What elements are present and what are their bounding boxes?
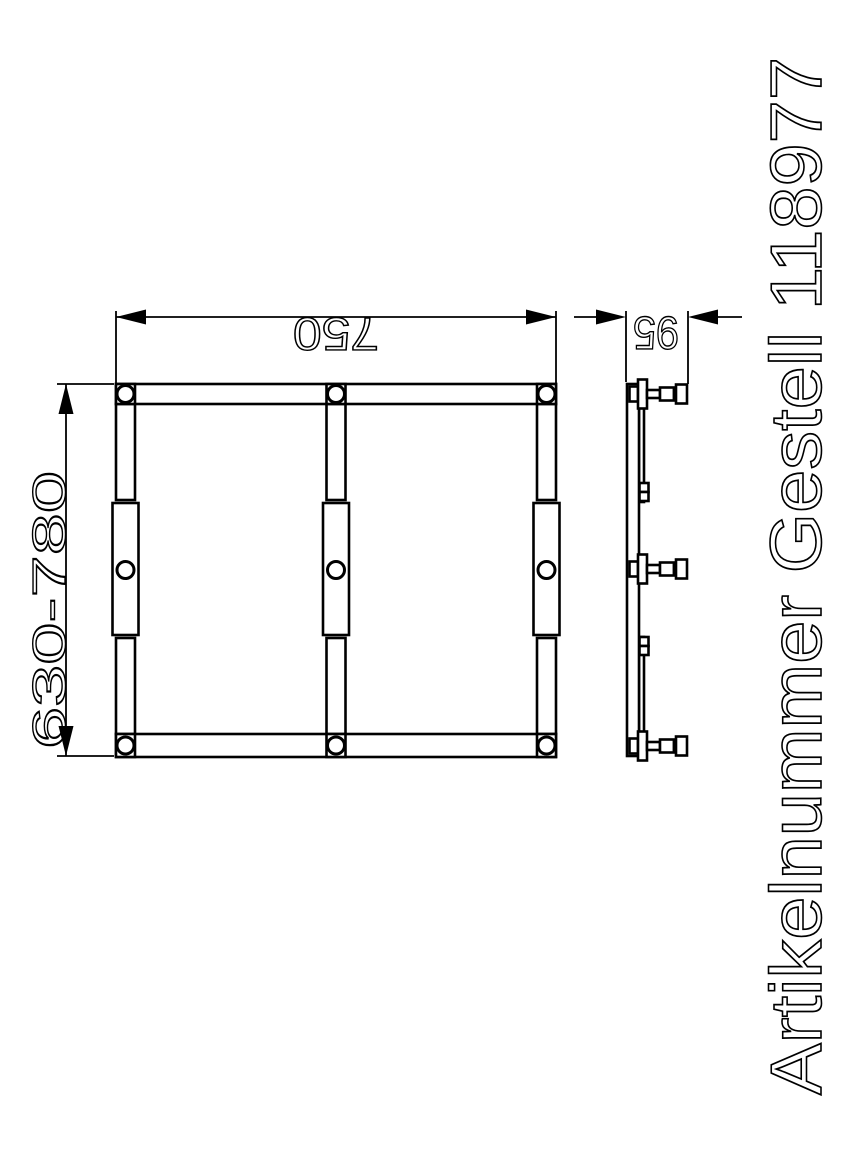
knob-shaft bbox=[647, 390, 660, 398]
clip-segment bbox=[640, 492, 649, 501]
arrowhead bbox=[59, 384, 74, 414]
clamp-knob-bottom bbox=[630, 732, 688, 761]
arrowhead bbox=[688, 310, 718, 325]
clamp-knob-middle bbox=[630, 555, 688, 584]
rail-upper-tube bbox=[327, 404, 346, 500]
mounting-hole bbox=[538, 562, 555, 579]
dimension-depth-label: 95 bbox=[633, 307, 679, 359]
rail-left bbox=[113, 384, 139, 757]
knob-collar bbox=[660, 740, 674, 753]
side-view bbox=[627, 380, 687, 761]
mounting-hole bbox=[538, 386, 555, 403]
rail-lower-tube bbox=[116, 638, 135, 734]
dimension-depth: 95 bbox=[574, 307, 742, 384]
mounting-hole bbox=[117, 562, 134, 579]
knob-collar bbox=[660, 388, 674, 401]
rail-upper-tube bbox=[537, 404, 556, 500]
rail-middle bbox=[323, 384, 349, 757]
arrowhead bbox=[526, 310, 556, 325]
dimension-height: 630-780 bbox=[23, 384, 114, 756]
knob-shaft bbox=[647, 565, 660, 573]
knob-cap bbox=[676, 737, 687, 756]
arrowhead bbox=[596, 310, 626, 325]
mounting-hole bbox=[117, 386, 134, 403]
front-view bbox=[113, 384, 560, 757]
rail-right bbox=[534, 384, 560, 757]
rail-upper-tube bbox=[116, 404, 135, 500]
arrowhead bbox=[116, 310, 146, 325]
technical-drawing: 750 630-780 95 Artikelnummer Gestell 118… bbox=[0, 0, 855, 1166]
clip-segment bbox=[640, 646, 649, 655]
dimension-height-label: 630-780 bbox=[23, 471, 75, 749]
knob-cap bbox=[676, 560, 687, 579]
dimension-width: 750 bbox=[116, 308, 556, 383]
dimension-width-label: 750 bbox=[293, 308, 379, 360]
clamp-knob-top bbox=[630, 380, 688, 409]
clip-segment bbox=[640, 637, 649, 646]
mounting-hole bbox=[328, 737, 345, 754]
clip-segment bbox=[640, 483, 649, 492]
mounting-hole bbox=[117, 737, 134, 754]
knob-cap bbox=[676, 385, 687, 404]
side-clip-upper bbox=[640, 483, 649, 501]
knob-plate bbox=[638, 555, 647, 584]
knob-plate bbox=[638, 732, 647, 761]
mounting-hole bbox=[328, 386, 345, 403]
drawing-title: Artikelnummer Gestell 118977 bbox=[757, 57, 837, 1095]
knob-collar bbox=[660, 563, 674, 576]
drawing-canvas: 750 630-780 95 Artikelnummer Gestell 118… bbox=[0, 0, 855, 1166]
knob-plate bbox=[638, 380, 647, 409]
mounting-hole bbox=[538, 737, 555, 754]
side-clip-lower bbox=[640, 637, 649, 655]
knob-shaft bbox=[647, 742, 660, 750]
rail-lower-tube bbox=[327, 638, 346, 734]
mounting-hole bbox=[328, 562, 345, 579]
rail-lower-tube bbox=[537, 638, 556, 734]
